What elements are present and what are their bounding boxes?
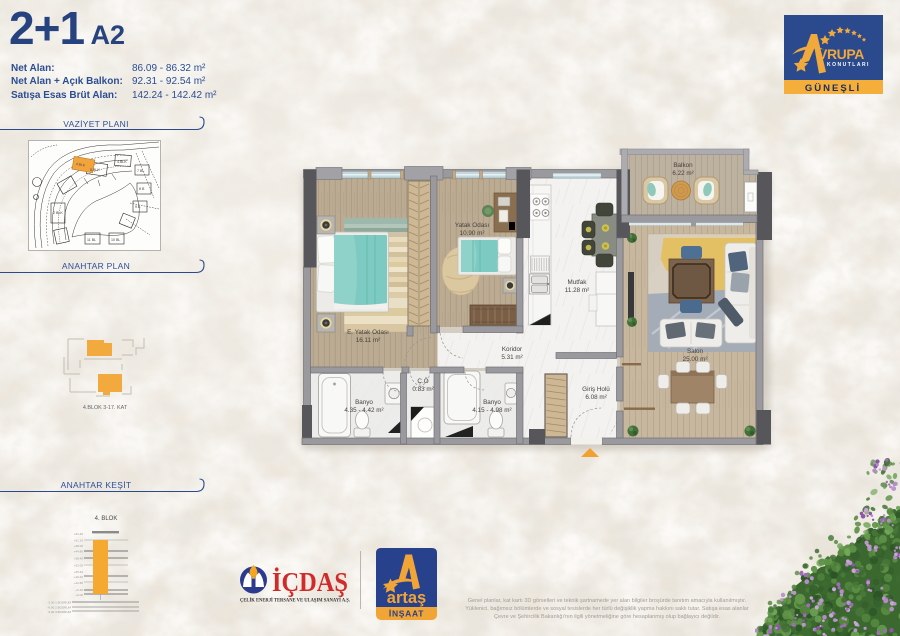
svg-text:KONUTLARI: KONUTLARI xyxy=(827,62,870,68)
svg-text:-9.00 3.BODRUM: -9.00 3.BODRUM xyxy=(47,610,71,614)
svg-text:9 B: 9 B xyxy=(135,205,141,209)
svg-text:2 BLK: 2 BLK xyxy=(53,211,63,215)
svg-text:11.28 m²: 11.28 m² xyxy=(565,287,589,294)
svg-text:+12.80: +12.80 xyxy=(74,581,84,585)
svg-text:E. Yatak Odası: E. Yatak Odası xyxy=(347,329,389,336)
svg-text:10.90 m²: 10.90 m² xyxy=(460,230,485,237)
svg-text:+32.00: +32.00 xyxy=(74,564,84,568)
svg-text:6.22 m²: 6.22 m² xyxy=(672,170,693,177)
svg-text:8 B: 8 B xyxy=(139,187,145,191)
svg-text:Salon: Salon xyxy=(687,348,704,355)
svg-text:+0.00: +0.00 xyxy=(75,593,83,597)
svg-text:6.08 m²: 6.08 m² xyxy=(585,394,606,401)
svg-text:İNŞAAT: İNŞAAT xyxy=(389,609,424,619)
svg-text:artaş: artaş xyxy=(387,589,426,607)
svg-text:4.15 - 4.98 m²: 4.15 - 4.98 m² xyxy=(472,407,511,414)
svg-text:+25.60: +25.60 xyxy=(74,570,84,574)
svg-text:4.BLK: 4.BLK xyxy=(117,160,127,164)
svg-text:16.11 m²: 16.11 m² xyxy=(356,337,380,344)
svg-text:Giriş Holü: Giriş Holü xyxy=(582,386,610,393)
svg-text:İÇDAŞ: İÇDAŞ xyxy=(272,567,348,597)
svg-text:11 BL: 11 BL xyxy=(87,238,96,242)
svg-text:+54.40: +54.40 xyxy=(74,532,84,536)
svg-text:Koridor: Koridor xyxy=(502,346,522,353)
svg-text:4. BLOK: 4. BLOK xyxy=(95,516,118,522)
svg-text:VRUPA: VRUPA xyxy=(818,46,864,62)
svg-text:Yatak Odası: Yatak Odası xyxy=(455,222,489,229)
svg-text:0.83 m²: 0.83 m² xyxy=(412,386,433,393)
svg-text:-6.00 2.BODRUM: -6.00 2.BODRUM xyxy=(47,606,71,610)
svg-text:Mutfak: Mutfak xyxy=(568,279,588,286)
svg-text:5.BLK: 5.BLK xyxy=(90,168,100,172)
svg-text:+48.00: +48.00 xyxy=(74,544,84,548)
svg-text:Banyo: Banyo xyxy=(355,399,373,406)
svg-text:Banyo: Banyo xyxy=(483,399,501,406)
svg-text:+51.20: +51.20 xyxy=(74,539,84,543)
svg-text:+19.20: +19.20 xyxy=(74,575,84,579)
svg-text:10 BL: 10 BL xyxy=(111,238,120,242)
svg-text:+6.40: +6.40 xyxy=(75,588,83,592)
svg-text:7 BL: 7 BL xyxy=(137,169,144,173)
svg-text:-3.00 1.BODRUM: -3.00 1.BODRUM xyxy=(47,601,71,605)
svg-text:+44.80: +44.80 xyxy=(74,550,84,554)
svg-text:4.35 - 4.42 m²: 4.35 - 4.42 m² xyxy=(344,407,383,414)
svg-text:GÜNEŞLİ: GÜNEŞLİ xyxy=(805,83,861,94)
svg-text:5.31 m²: 5.31 m² xyxy=(501,354,522,361)
svg-text:4.BLOK 3-17. KAT: 4.BLOK 3-17. KAT xyxy=(83,405,128,411)
svg-text:+38.40: +38.40 xyxy=(74,557,84,561)
svg-text:ÇELİK ENERJİ TERSANE VE ULAŞIM: ÇELİK ENERJİ TERSANE VE ULAŞIM SANAYİ A.… xyxy=(240,597,351,604)
svg-text:Balkon: Balkon xyxy=(673,162,693,169)
